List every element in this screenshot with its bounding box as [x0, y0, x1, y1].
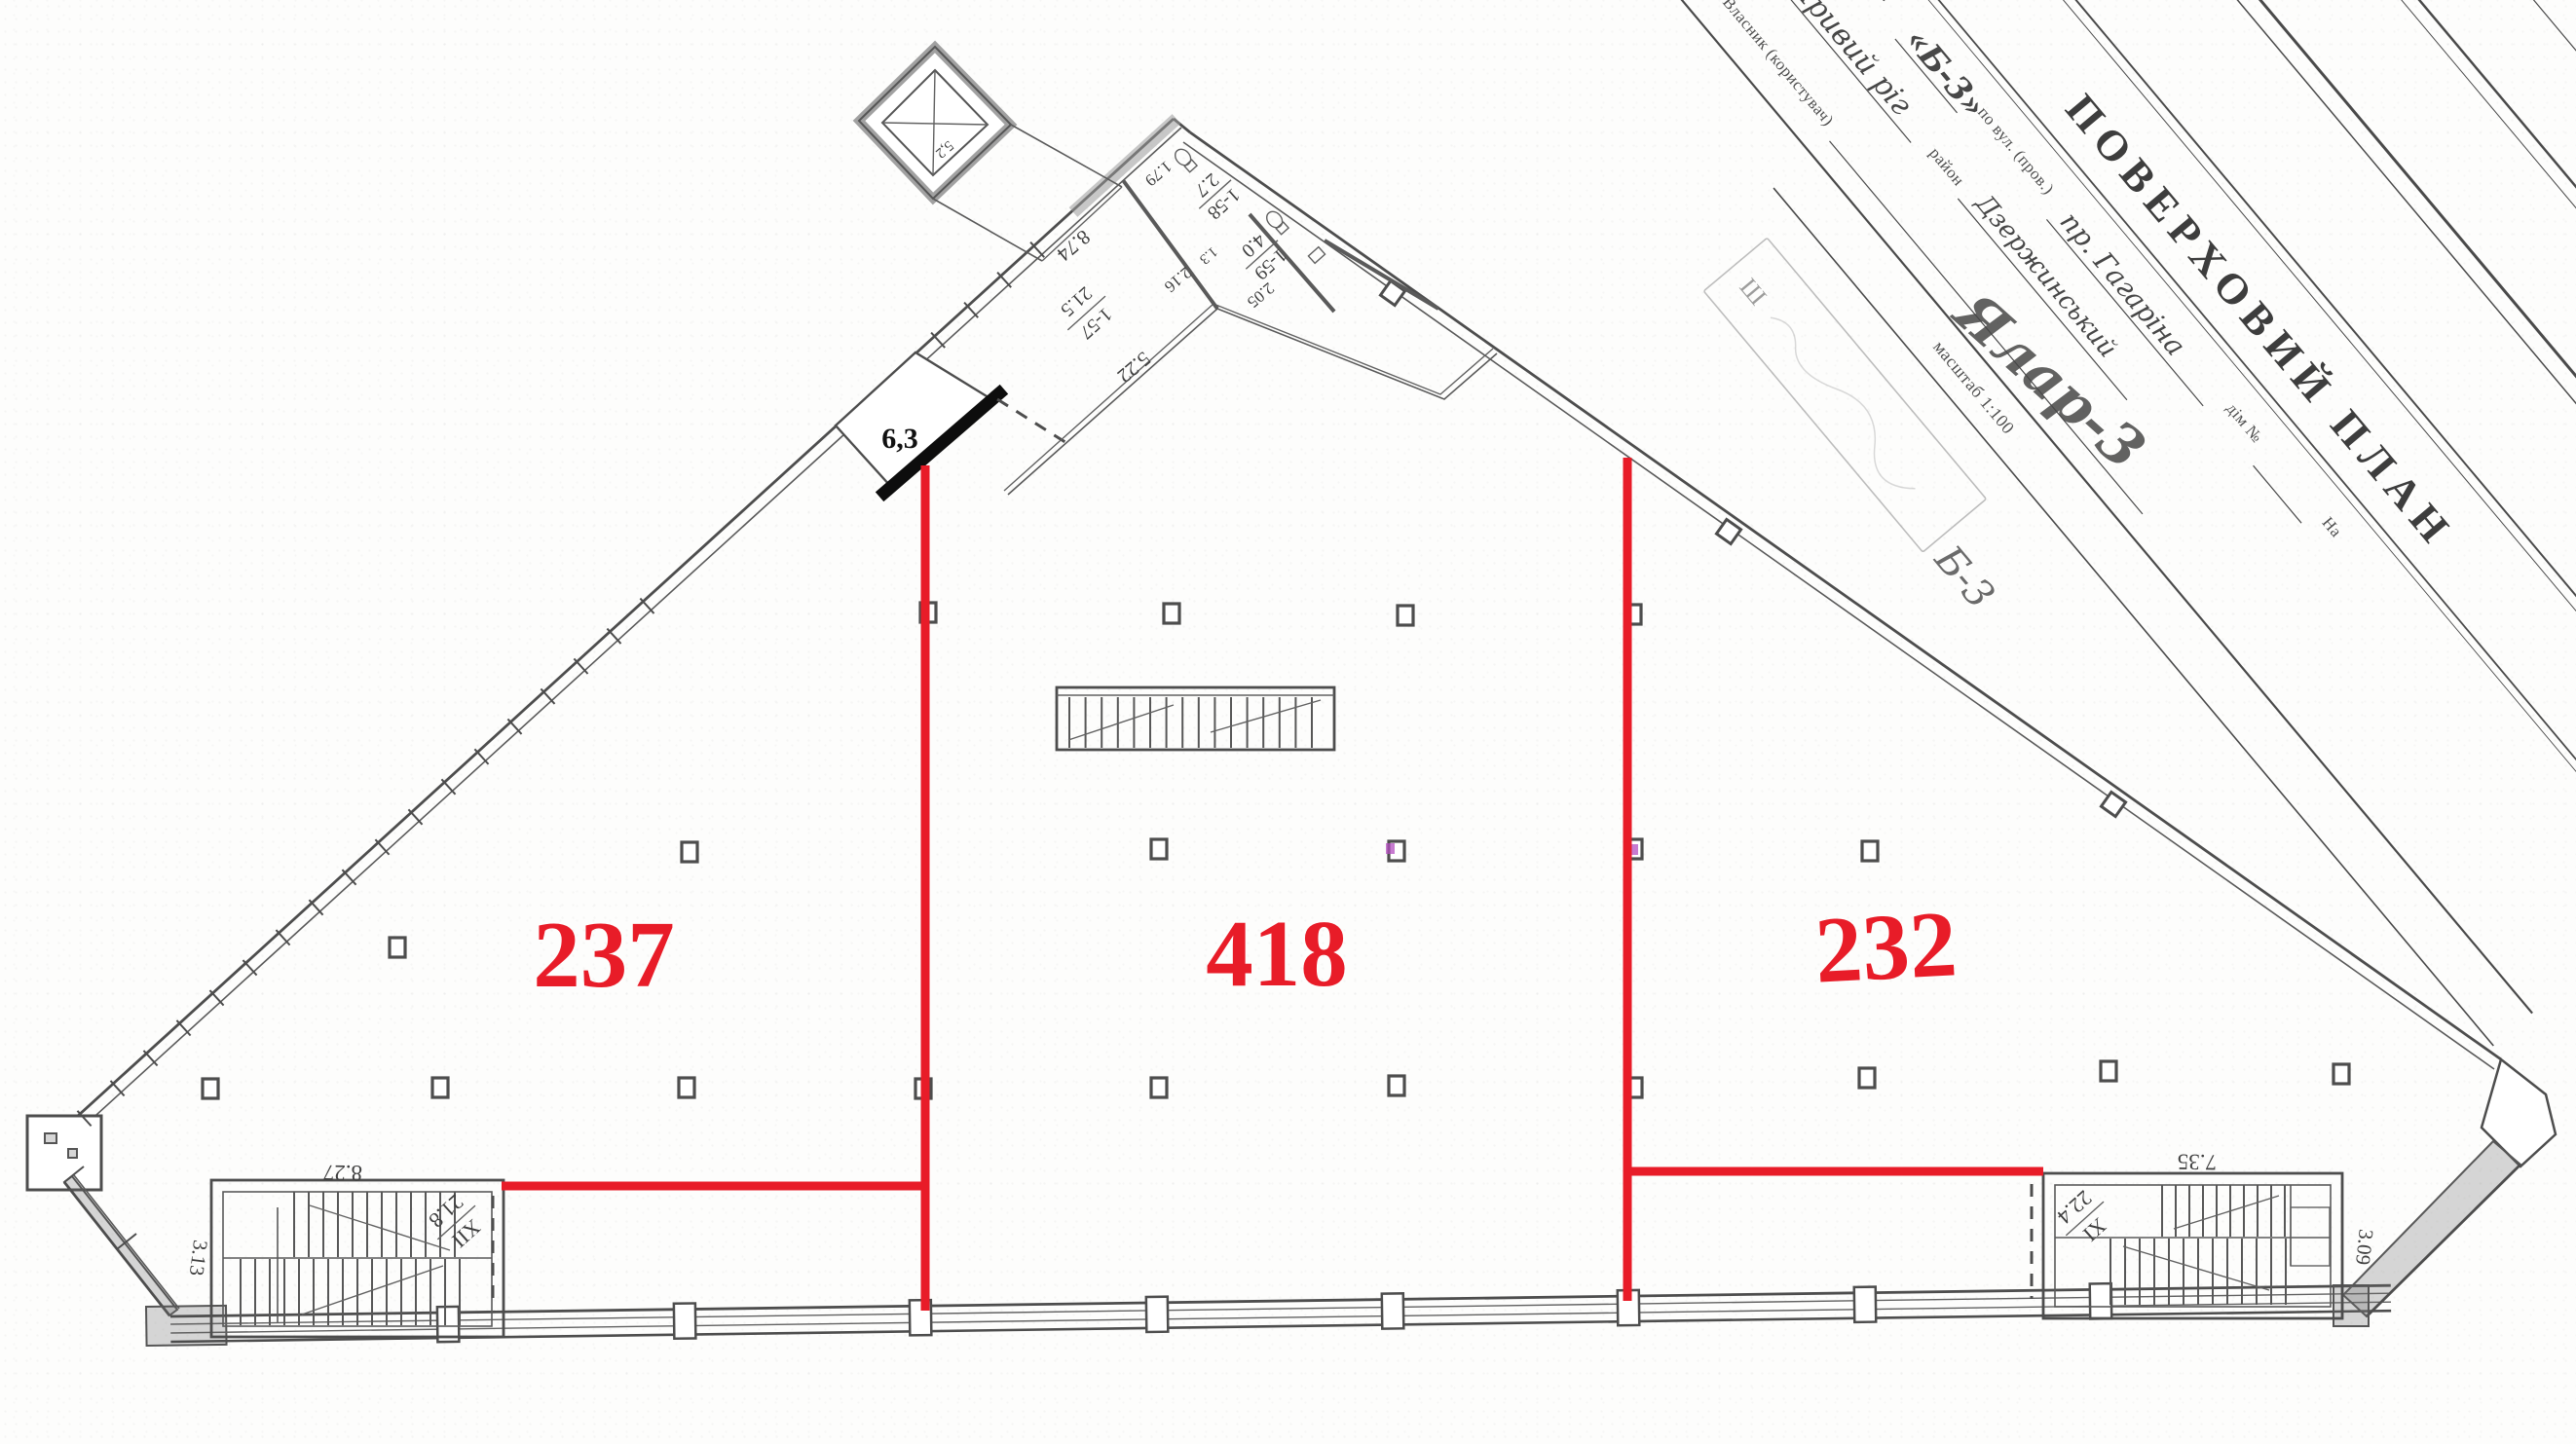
stairs-left-label: XII 21.8	[420, 1185, 494, 1259]
stairs-left-depth: 3.13	[185, 1239, 212, 1277]
zone-area-right: 232	[1812, 891, 1960, 1002]
dim-edge: 5.22	[1113, 347, 1156, 388]
sink-fixture	[1308, 247, 1325, 264]
house-number-label: дім №	[2222, 399, 2266, 446]
elevator-shaft: 5,2	[859, 47, 1011, 199]
floor-plan-drawing: 5,2 6,3 8.74 5.22 1.79	[0, 0, 2576, 1444]
room-6-3-area: 6,3	[881, 423, 918, 455]
stairs-left-width: 8.27	[323, 1161, 363, 1186]
dim-159: 2.05	[1244, 278, 1278, 312]
toilet-fixture	[1263, 208, 1289, 236]
title-block: ПОВЕРХОВИЙ ПЛАН будинку літ. «Б-3» по ву…	[1426, 0, 2576, 1239]
stairs-right-depth: 3.09	[2351, 1228, 2378, 1266]
zone-area-center: 418	[1206, 902, 1348, 1006]
corner-post-left	[27, 1116, 101, 1190]
room-label-1-57: 1-57 21.5	[1050, 277, 1121, 348]
dim-corridor: 8.74	[1052, 225, 1095, 266]
district-label: район	[1925, 144, 1968, 190]
dim-fixture: 1.3	[1196, 243, 1220, 267]
stamp-note: Б-3	[1925, 537, 2003, 617]
pencil-mark	[1386, 843, 1395, 854]
central-escalator	[1057, 687, 1334, 750]
opening-dashed	[997, 399, 1071, 446]
red-zone-markup: 237 418 232	[502, 458, 2043, 1311]
room-6-3: 6,3	[836, 352, 999, 493]
dim-158: 1.79	[1141, 157, 1176, 190]
stairs-right-width: 7.35	[2178, 1150, 2218, 1175]
scanned-floor-plan: 5,2 6,3 8.74 5.22 1.79	[0, 0, 2576, 1444]
stamp-mark: Ш	[1735, 273, 1773, 311]
svg-text:XI: XI	[2078, 1213, 2111, 1246]
stamp-box: Ш	[1703, 238, 1986, 552]
room-label-1-58: 1-58 2.7	[1183, 163, 1247, 226]
apex-rooms: 5,2 6,3 8.74 5.22 1.79	[836, 47, 1497, 495]
building-outline	[27, 119, 2556, 1346]
house-number-suffix: На	[2319, 513, 2346, 540]
stairwell-right: 7.35 3.09 XI 22.4	[2032, 1150, 2378, 1318]
sheet-title: ПОВЕРХОВИЙ ПЛАН	[2056, 86, 2463, 558]
columns	[203, 603, 2349, 1098]
street-label: по вул. (пров.)	[1974, 103, 2058, 198]
zone-area-left: 237	[533, 903, 675, 1007]
building-value: «Б-3»	[1898, 21, 1994, 125]
